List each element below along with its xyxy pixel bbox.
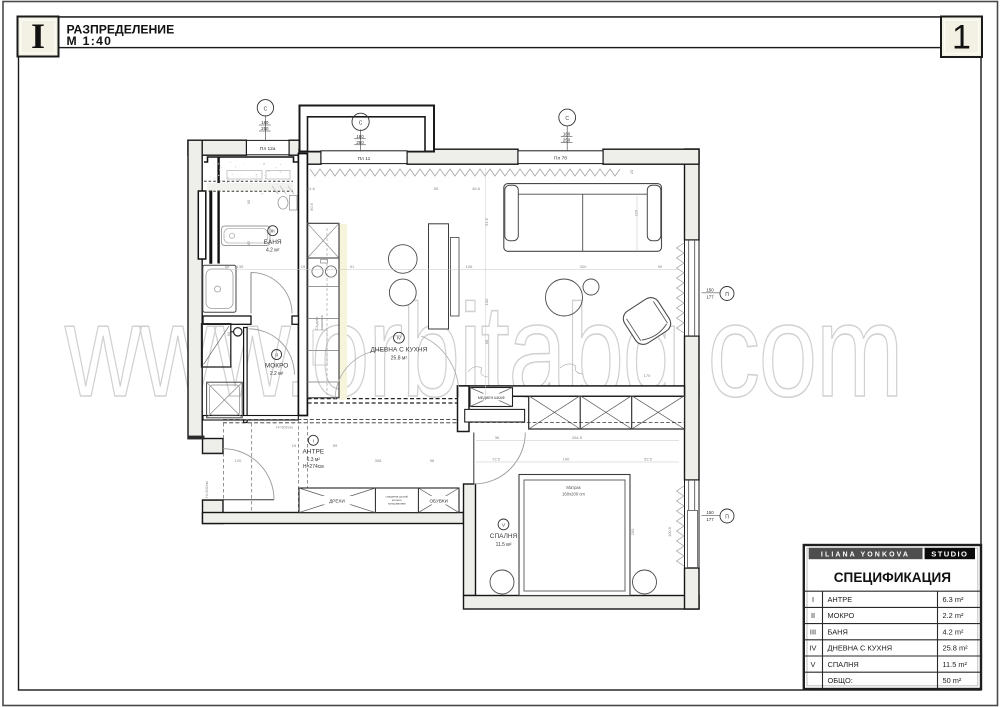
svg-text:4.2 m²: 4.2 m² bbox=[943, 627, 964, 636]
svg-text:БАНЯ: БАНЯ bbox=[828, 627, 848, 636]
svg-text:91.6: 91.6 bbox=[484, 217, 489, 226]
svg-text:19: 19 bbox=[292, 443, 297, 448]
svg-text:264.5: 264.5 bbox=[572, 435, 583, 440]
svg-text:ДНЕВНА С КУХНЯ: ДНЕВНА С КУХНЯ bbox=[370, 347, 427, 354]
svg-text:III: III bbox=[810, 627, 816, 636]
svg-text:II: II bbox=[811, 611, 815, 620]
svg-text:150: 150 bbox=[706, 287, 714, 292]
svg-text:Матрак: Матрак bbox=[566, 485, 580, 490]
svg-text:СПЕЦИФИКАЦИЯ: СПЕЦИФИКАЦИЯ bbox=[834, 570, 951, 585]
svg-text:С: С bbox=[359, 120, 363, 126]
svg-text:6.3 м²: 6.3 м² bbox=[307, 457, 321, 463]
svg-text:100: 100 bbox=[484, 298, 489, 305]
svg-text:БАНЯ: БАНЯ bbox=[264, 239, 282, 246]
svg-text:96: 96 bbox=[430, 458, 435, 463]
svg-text:25.8 m²: 25.8 m² bbox=[943, 644, 969, 653]
svg-text:Н=302см: Н=302см bbox=[276, 425, 293, 430]
svg-text:115: 115 bbox=[634, 209, 639, 216]
svg-text:55: 55 bbox=[434, 186, 439, 191]
svg-text:72.5: 72.5 bbox=[492, 457, 501, 462]
svg-text:180: 180 bbox=[356, 134, 364, 139]
svg-text:С: С bbox=[565, 116, 569, 122]
svg-text:59: 59 bbox=[333, 443, 338, 448]
svg-text:177: 177 bbox=[706, 517, 714, 522]
svg-text:19: 19 bbox=[301, 264, 306, 269]
svg-text:ОБЩО:: ОБЩО: bbox=[828, 676, 853, 685]
svg-text:11.5 m²: 11.5 m² bbox=[943, 660, 968, 669]
svg-text:106: 106 bbox=[466, 264, 473, 269]
svg-text:36: 36 bbox=[495, 435, 500, 440]
svg-text:ДРЕХИ: ДРЕХИ bbox=[329, 499, 345, 504]
svg-text:машина: машина bbox=[319, 314, 324, 330]
svg-text:320: 320 bbox=[580, 264, 587, 269]
svg-text:Н=274см: Н=274см bbox=[303, 464, 324, 470]
svg-text:МЕДИЕН ШКАФ: МЕДИЕН ШКАФ bbox=[478, 396, 505, 400]
svg-text:М 1:40: М 1:40 bbox=[67, 34, 113, 48]
svg-text:55: 55 bbox=[225, 264, 230, 269]
svg-text:62: 62 bbox=[246, 240, 251, 245]
svg-text:V: V bbox=[811, 660, 816, 669]
svg-text:1: 1 bbox=[952, 19, 971, 57]
svg-text:100.6: 100.6 bbox=[667, 526, 672, 537]
svg-text:170: 170 bbox=[644, 373, 651, 378]
svg-text:190: 190 bbox=[563, 457, 570, 462]
svg-text:консумативи: консумативи bbox=[388, 502, 406, 506]
svg-text:ДНЕВНА С КУХНЯ: ДНЕВНА С КУХНЯ bbox=[828, 644, 893, 653]
svg-text:250: 250 bbox=[261, 126, 269, 131]
svg-text:I: I bbox=[812, 595, 814, 604]
svg-text:180: 180 bbox=[563, 132, 571, 137]
svg-text:250: 250 bbox=[563, 138, 571, 143]
svg-text:АНТРЕ: АНТРЕ bbox=[828, 595, 853, 604]
svg-text:250: 250 bbox=[356, 140, 364, 145]
svg-text:Пл 7б: Пл 7б bbox=[554, 156, 567, 162]
svg-text:Н=302см: Н=302см bbox=[204, 481, 209, 498]
svg-text:160х200 cm: 160х200 cm bbox=[562, 492, 585, 497]
svg-text:150: 150 bbox=[706, 510, 714, 515]
svg-text:11.5 м²: 11.5 м² bbox=[496, 542, 512, 548]
svg-text:6.3 m²: 6.3 m² bbox=[943, 595, 964, 604]
svg-text:П: П bbox=[725, 514, 729, 520]
svg-text:ОБУВКИ: ОБУВКИ bbox=[429, 499, 447, 504]
svg-text:МОКРО: МОКРО bbox=[828, 611, 855, 620]
svg-text:90: 90 bbox=[226, 331, 231, 336]
svg-text:90.6: 90.6 bbox=[309, 202, 314, 211]
svg-text:П: П bbox=[725, 292, 729, 298]
svg-text:177: 177 bbox=[706, 294, 714, 299]
svg-text:2.2 м²: 2.2 м² bbox=[270, 371, 284, 377]
svg-text:Пл 11: Пл 11 bbox=[358, 156, 371, 162]
svg-text:20: 20 bbox=[629, 169, 634, 174]
svg-text:52.5: 52.5 bbox=[644, 457, 653, 462]
svg-text:2.2 m²: 2.2 m² bbox=[943, 611, 964, 620]
svg-text:25.8 м²: 25.8 м² bbox=[391, 356, 408, 362]
svg-text:III: III bbox=[271, 229, 275, 234]
svg-text:120: 120 bbox=[235, 458, 242, 463]
svg-text:90: 90 bbox=[658, 264, 663, 269]
svg-text:46.8: 46.8 bbox=[472, 186, 481, 191]
svg-text:СПАЛНЯ: СПАЛНЯ bbox=[490, 533, 518, 540]
svg-text:АНТРЕ: АНТРЕ bbox=[302, 449, 324, 456]
svg-text:4.2 м²: 4.2 м² bbox=[266, 247, 280, 253]
svg-text:II: II bbox=[275, 353, 278, 358]
svg-text:Пл 12а: Пл 12а bbox=[260, 146, 276, 152]
svg-text:МОКРО: МОКРО bbox=[265, 363, 289, 370]
svg-text:91.6: 91.6 bbox=[307, 186, 316, 191]
svg-text:ILIANA YONKOVA: ILIANA YONKOVA bbox=[821, 551, 910, 558]
svg-text:STUDIO: STUDIO bbox=[931, 550, 968, 559]
svg-text:СПАЛНЯ: СПАЛНЯ bbox=[828, 660, 859, 669]
svg-text:135: 135 bbox=[237, 264, 244, 269]
svg-text:90: 90 bbox=[246, 199, 251, 204]
svg-text:С: С bbox=[264, 106, 268, 112]
svg-text:200: 200 bbox=[630, 528, 635, 535]
svg-text:91: 91 bbox=[350, 264, 355, 269]
svg-text:IV: IV bbox=[810, 644, 817, 653]
svg-text:180: 180 bbox=[261, 120, 269, 125]
svg-text:I: I bbox=[31, 16, 45, 56]
svg-text:68: 68 bbox=[484, 339, 489, 344]
svg-text:50 m²: 50 m² bbox=[943, 676, 962, 685]
svg-text:I: I bbox=[313, 438, 314, 443]
svg-text:308: 308 bbox=[375, 458, 382, 463]
